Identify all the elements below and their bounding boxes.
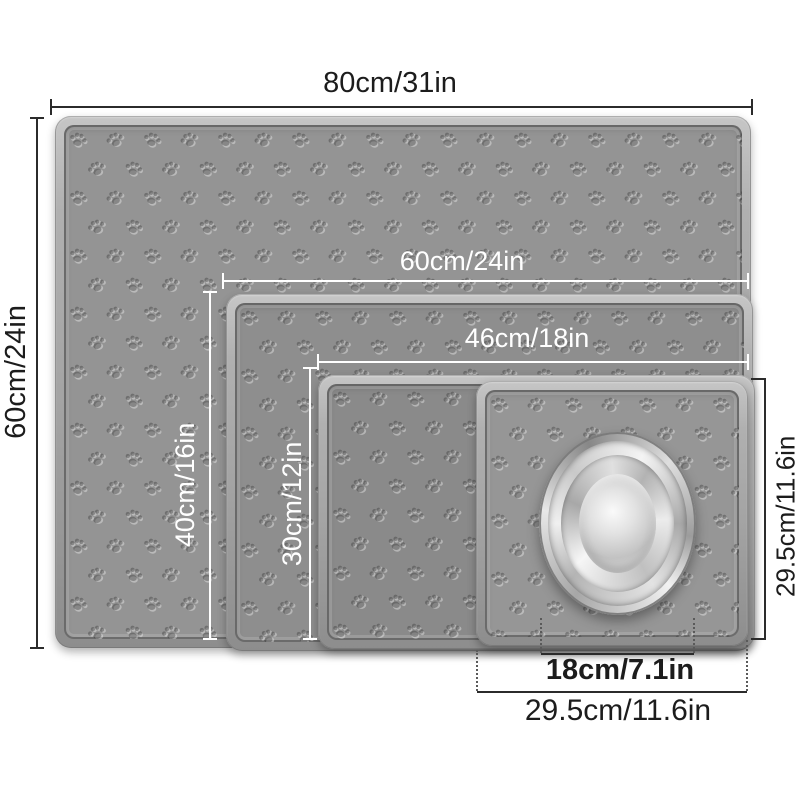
label-medium-height: 40cm/16in [171, 355, 201, 615]
dim-line-square-height [764, 378, 766, 640]
dim-line-outer-width [50, 106, 753, 108]
dim-line-outer-height [36, 117, 38, 649]
steel-bowl [539, 432, 696, 615]
dim-line-square-width [477, 691, 747, 693]
label-small-height: 30cm/12in [278, 374, 308, 634]
label-square-height: 29.5cm/11.6in [772, 366, 800, 666]
label-small-width: 46cm/18in [397, 324, 657, 354]
bowl-center [579, 474, 656, 573]
dotted-connector [540, 618, 542, 653]
label-outer-height: 60cm/24in [1, 242, 33, 502]
dim-line-small-height [309, 367, 311, 640]
dim-line-small-width [317, 361, 749, 363]
label-bowl-diameter: 18cm/7.1in [490, 655, 750, 687]
dim-line-medium-height [209, 291, 211, 640]
label-medium-width: 60cm/24in [332, 247, 592, 277]
product-size-diagram: 80cm/31in 60cm/24in 60cm/24in 46cm/18in … [0, 0, 800, 800]
dotted-connector [693, 618, 695, 653]
label-outer-width: 80cm/31in [260, 68, 520, 100]
label-square-width: 29.5cm/11.6in [468, 694, 768, 727]
dim-line-medium-width [222, 280, 749, 282]
dotted-connector [476, 650, 478, 691]
